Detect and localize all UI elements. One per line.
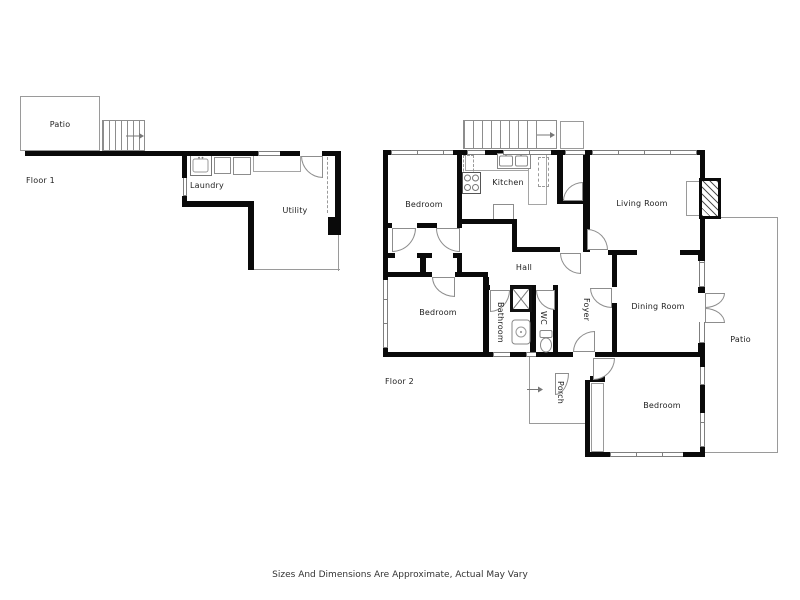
door-arc — [392, 228, 416, 252]
room-label-wc: WC — [539, 306, 548, 330]
stove-icon — [462, 172, 481, 194]
wall — [417, 223, 437, 228]
wall — [612, 255, 617, 287]
wall — [385, 253, 395, 258]
dryer — [233, 157, 251, 175]
door-arc — [590, 288, 612, 308]
window — [383, 280, 388, 348]
wall — [182, 201, 253, 207]
kitchen-dashed-cabinet — [538, 157, 549, 187]
wall — [462, 219, 517, 224]
stairs-floor2-arrow-icon — [536, 130, 556, 140]
fireplace-hearth — [686, 181, 700, 216]
wall — [388, 352, 493, 357]
floor2-label: Floor 2 — [385, 377, 414, 387]
door-arc — [301, 156, 323, 178]
wall — [585, 380, 590, 457]
wall — [510, 352, 526, 357]
window — [700, 413, 705, 447]
wall — [700, 385, 705, 413]
utility-open-edge-right — [338, 235, 339, 271]
wall — [383, 223, 392, 228]
wall — [700, 357, 705, 367]
window — [503, 150, 551, 155]
room-label-patio-floor2: Patio — [718, 335, 763, 345]
fireplace-icon — [699, 178, 721, 219]
wall — [328, 217, 341, 235]
wall — [385, 272, 432, 277]
window — [699, 322, 705, 343]
porch-entry-arrow-icon — [526, 385, 544, 394]
wall — [515, 247, 560, 252]
toilet-icon — [538, 330, 554, 353]
wall — [585, 452, 610, 457]
window — [258, 151, 280, 156]
kitchen-sink-icon — [497, 153, 531, 169]
door-arc — [587, 229, 608, 250]
door-arc — [436, 228, 460, 252]
door-arc — [593, 358, 615, 380]
room-label-bedroom-mid: Bedroom — [408, 308, 468, 318]
bathroom-sink-icon — [511, 319, 531, 345]
wall — [595, 352, 705, 357]
laundry-sink-icon — [190, 155, 212, 176]
shower-icon — [510, 286, 532, 312]
stairs-floor1-arrow-icon — [125, 131, 145, 141]
window — [526, 352, 536, 357]
room-label-foyer: Foyer — [582, 289, 591, 331]
door-arc — [573, 331, 595, 352]
room-label-utility: Utility — [272, 206, 318, 216]
window — [700, 367, 705, 385]
utility-open-edge-bottom — [250, 269, 340, 270]
room-label-laundry: Laundry — [184, 181, 230, 191]
wall — [457, 150, 462, 228]
window — [699, 261, 705, 287]
stair-landing — [560, 121, 584, 149]
disclaimer-text: Sizes And Dimensions Are Approximate, Ac… — [0, 570, 800, 580]
room-label-bedroom-top: Bedroom — [394, 200, 454, 210]
window — [592, 150, 697, 155]
wall — [557, 150, 563, 200]
window — [493, 352, 510, 357]
room-label-kitchen: Kitchen — [483, 178, 533, 188]
door-arc — [560, 253, 581, 274]
wall — [248, 201, 254, 270]
room-label-patio-floor1: Patio — [30, 120, 90, 130]
stairs-risers — [464, 121, 542, 148]
bedroom-closet-strip — [591, 383, 604, 452]
room-label-porch: Porch — [556, 372, 565, 414]
room-label-dining-room: Dining Room — [623, 302, 693, 312]
room-label-bedroom-bottom: Bedroom — [632, 401, 692, 411]
door-arc — [563, 182, 583, 201]
room-label-bathroom: Bathroom — [496, 296, 505, 348]
wall — [483, 285, 490, 290]
window — [391, 150, 453, 155]
floor1-label: Floor 1 — [26, 176, 55, 186]
room-label-living-room: Living Room — [612, 199, 672, 209]
window — [610, 452, 683, 457]
washer — [214, 157, 231, 174]
wall — [182, 151, 187, 178]
wall — [698, 287, 705, 293]
wall — [335, 151, 341, 217]
window — [467, 150, 485, 155]
wall — [612, 303, 617, 352]
room-label-hall: Hall — [508, 263, 540, 273]
floorplan-canvas: Floor 1 Patio Laundry Utility Floor 2 Be… — [0, 0, 800, 600]
wall — [383, 150, 388, 280]
wall — [700, 216, 705, 255]
laundry-counter — [253, 155, 301, 172]
utility-dashed-line — [327, 157, 328, 213]
door-arc — [432, 277, 455, 297]
wall — [700, 447, 705, 457]
window — [565, 150, 585, 155]
